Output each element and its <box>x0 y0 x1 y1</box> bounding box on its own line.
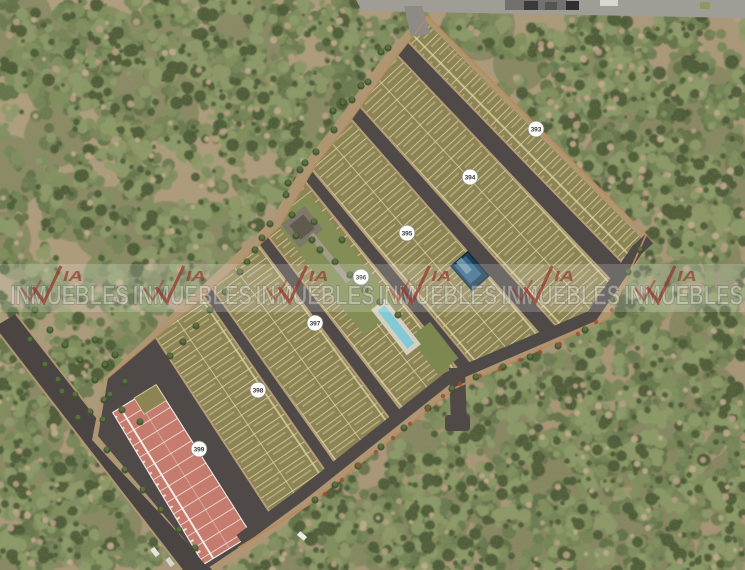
svg-text:398: 398 <box>253 387 264 394</box>
svg-text:IA: IA <box>431 269 451 285</box>
svg-text:IA: IA <box>186 269 206 285</box>
svg-text:IA: IA <box>677 269 697 285</box>
svg-text:393: 393 <box>531 126 542 133</box>
svg-text:397: 397 <box>310 320 321 327</box>
svg-text:IA: IA <box>63 269 83 285</box>
svg-text:IA: IA <box>554 269 574 285</box>
svg-text:399: 399 <box>194 446 205 453</box>
svg-text:IA: IA <box>309 269 329 285</box>
svg-text:395: 395 <box>402 230 413 237</box>
svg-text:394: 394 <box>465 174 476 181</box>
